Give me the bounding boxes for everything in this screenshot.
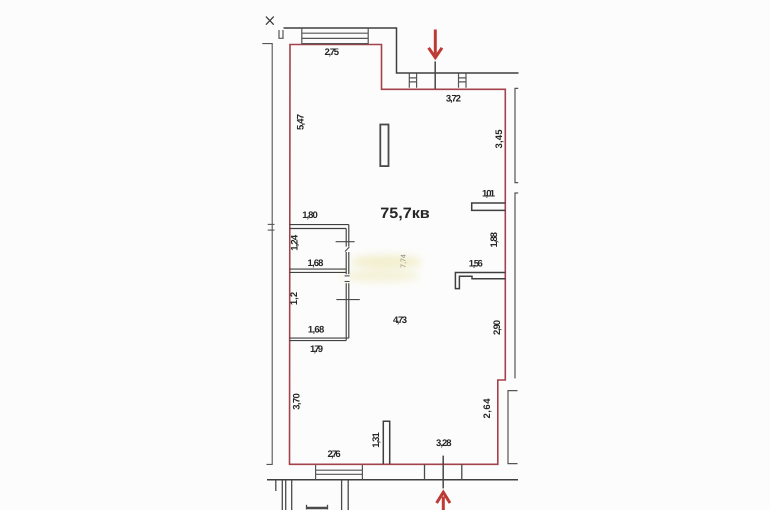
svg-text:5,47: 5,47 xyxy=(296,114,307,130)
svg-text:3,28: 3,28 xyxy=(436,438,452,449)
svg-text:3,70: 3,70 xyxy=(291,393,302,410)
svg-text:2,75: 2,75 xyxy=(325,47,340,58)
svg-text:3,45: 3,45 xyxy=(494,129,505,149)
svg-text:2,90: 2,90 xyxy=(492,320,503,335)
svg-text:1,88: 1,88 xyxy=(489,232,500,248)
svg-text:1,68: 1,68 xyxy=(308,258,324,269)
svg-text:1,2: 1,2 xyxy=(289,292,300,305)
svg-text:2,76: 2,76 xyxy=(328,449,341,460)
svg-text:7,74: 7,74 xyxy=(401,254,408,268)
svg-text:4,73: 4,73 xyxy=(393,315,407,326)
svg-text:1,80: 1,80 xyxy=(302,210,318,221)
svg-text:1,24: 1,24 xyxy=(290,234,301,251)
svg-text:2,64: 2,64 xyxy=(482,398,493,419)
svg-text:1,79: 1,79 xyxy=(310,344,323,355)
svg-text:1,01: 1,01 xyxy=(482,188,496,199)
svg-text:1,56: 1,56 xyxy=(469,258,483,269)
svg-text:3,72: 3,72 xyxy=(446,94,461,105)
svg-text:1,31: 1,31 xyxy=(371,432,382,448)
svg-text:75,7кв: 75,7кв xyxy=(380,205,430,222)
svg-text:1,68: 1,68 xyxy=(308,324,325,335)
